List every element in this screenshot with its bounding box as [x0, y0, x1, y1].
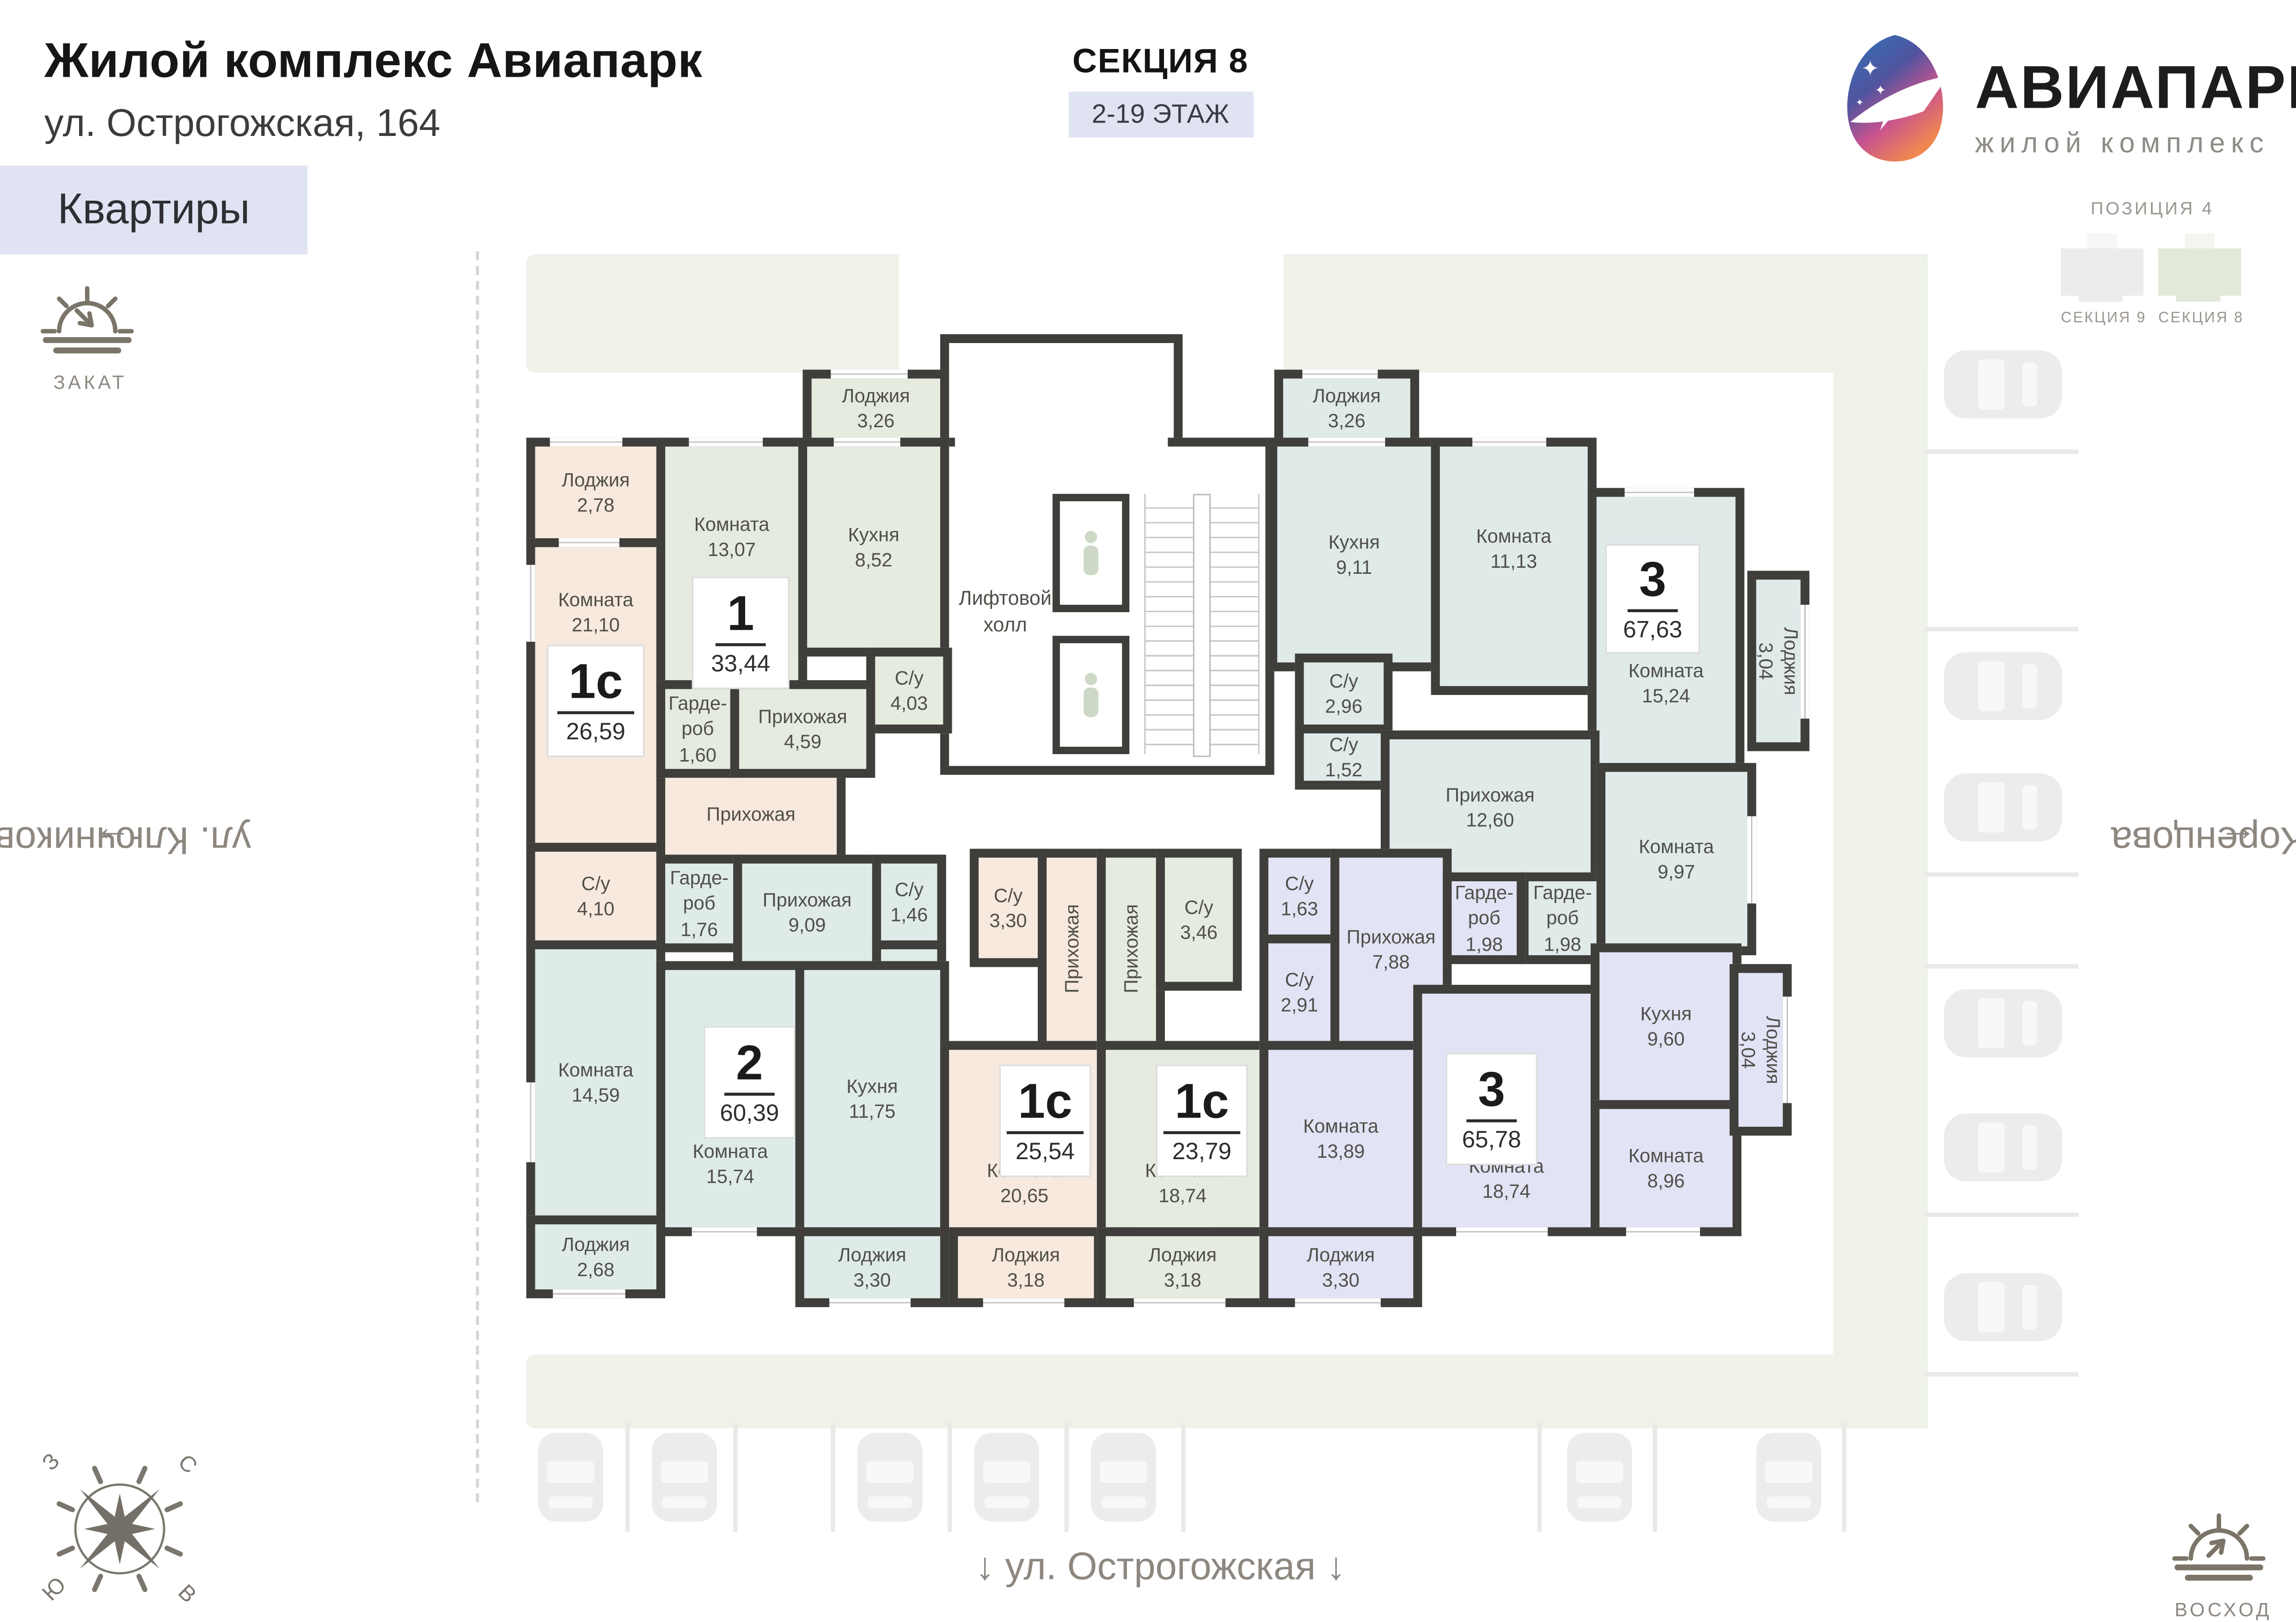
window	[834, 438, 900, 447]
apartment-type: 1с	[1163, 1076, 1241, 1134]
apartment-type: 3	[1466, 1064, 1517, 1122]
room-area: 1,98	[1465, 933, 1503, 955]
airplane-logo-icon: ✦ ✦ ✦	[1830, 30, 1960, 166]
room-name: Комната	[1303, 1115, 1378, 1137]
car-icon	[968, 1428, 1045, 1526]
apt-3-65-78-room-8-room[interactable]: Лоджия 3,30	[1260, 1227, 1422, 1307]
page-title: Жилой комплекс Авиапарк	[44, 32, 703, 89]
room-name: Лоджия	[1149, 1243, 1217, 1266]
room-area: 9,09	[789, 914, 826, 936]
elevator-2	[1053, 636, 1129, 754]
window	[1800, 604, 1809, 718]
window	[1308, 438, 1385, 447]
room-name: Гарде- роб	[668, 693, 727, 740]
room-area: 15,74	[706, 1165, 754, 1187]
apartment-type: 1	[715, 588, 766, 645]
window	[553, 1290, 626, 1298]
room-area: 20,65	[1000, 1185, 1048, 1207]
room-name: С/у	[895, 667, 924, 689]
plot-green-right	[1833, 254, 1928, 1428]
car-icon	[646, 1428, 723, 1526]
apt-3-67-63-room-4-bathroom[interactable]: С/у 2,96	[1295, 654, 1392, 734]
elevator-1	[1053, 494, 1129, 612]
car-icon	[851, 1428, 928, 1526]
room-area: 1,46	[890, 903, 928, 926]
window	[1456, 1227, 1548, 1236]
elevator-hall-label: Лифтовой холл	[946, 585, 1065, 639]
room-name: С/у	[994, 884, 1022, 906]
room-area: 3,30	[1322, 1269, 1359, 1291]
room-name: Лоджия	[838, 1243, 906, 1266]
car-icon	[1940, 766, 2067, 849]
apt-3-67-63-room-5-bathroom[interactable]: С/у 1,52	[1295, 725, 1392, 790]
room-area: 9,97	[1658, 860, 1695, 883]
room-area: 3,18	[1007, 1269, 1045, 1291]
room-area: 12,60	[1466, 809, 1514, 831]
car-icon	[532, 1428, 609, 1526]
apt-3-67-63-room-9-room[interactable]: Лоджия 3,04	[1747, 571, 1809, 751]
room-area: 14,59	[572, 1084, 620, 1106]
apt-1с-26-59-room-0-room[interactable]: Лоджия 2,78	[526, 438, 665, 547]
room-name: Комната	[1476, 525, 1551, 547]
car-icon	[1940, 645, 2067, 727]
staircase	[1144, 494, 1259, 754]
room-area: 3,30	[990, 909, 1027, 932]
apartment-type: 2	[724, 1037, 775, 1095]
apt-3-65-78-room-3-room[interactable]: Гарде- роб 1,98	[1443, 872, 1525, 964]
apt-1с-25-54-room-3-room[interactable]: Лоджия 3,18	[949, 1227, 1103, 1307]
compass-north: С	[173, 1450, 202, 1478]
apartment-total-area: 26,59	[566, 713, 625, 746]
room-name: Гарде- роб	[670, 867, 729, 915]
section-header: СЕКЦИЯ 8 2-19 ЭТАЖ	[946, 42, 1375, 138]
apartment-type: 3	[1627, 554, 1678, 612]
svg-text:✦: ✦	[1861, 56, 1879, 80]
room-name: С/у	[895, 878, 924, 900]
logo: ✦ ✦ ✦	[1830, 30, 1960, 173]
apt-1с-26-59-room-3-room[interactable]: Прихожая	[656, 766, 845, 864]
room-area: 3,46	[1180, 921, 1218, 943]
apt-2-60-39-room-7-room[interactable]: Кухня 11,75	[796, 961, 949, 1236]
room-name: С/у	[1329, 670, 1358, 692]
compass-west: З	[37, 1449, 64, 1475]
window	[1626, 1227, 1699, 1236]
room-area: 13,07	[708, 538, 756, 560]
room-area: 11,13	[1490, 550, 1537, 572]
apt-1-33-44-room-3-bathroom[interactable]: С/у 4,03	[866, 648, 952, 733]
room-name: Прихожая	[706, 804, 796, 826]
svg-text:✦: ✦	[1875, 83, 1886, 98]
room-name: Лоджия	[562, 468, 630, 491]
room-area: 1,98	[1544, 933, 1581, 955]
sunset-label: ЗАКАТ	[38, 371, 142, 393]
apt-3-67-63-badge[interactable]: 367,63	[1605, 544, 1700, 654]
apt-1с-25-54-badge[interactable]: 1с25,54	[999, 1065, 1091, 1177]
minimap-section-9[interactable]: СЕКЦИЯ 9	[2061, 233, 2146, 326]
room-name: Прихожая	[1347, 925, 1436, 947]
room-area: 8,52	[855, 548, 892, 571]
room-area: 18,74	[1158, 1185, 1206, 1207]
apt-3-65-78-badge[interactable]: 365,78	[1446, 1053, 1537, 1165]
apartment-total-area: 25,54	[1016, 1133, 1075, 1166]
minimap-section-8[interactable]: СЕКЦИЯ 8	[2158, 233, 2244, 326]
position-title: ПОЗИЦИЯ 4	[2055, 198, 2250, 219]
window	[1624, 488, 1694, 497]
apt-3-67-63-room-8-room[interactable]: Комната 9,97	[1597, 763, 1756, 955]
boundary-dashed-line	[476, 252, 479, 1503]
room-name: Гарде- роб	[1533, 882, 1592, 929]
apt-2-60-39-room-2-room[interactable]: Гарде- роб 1,76	[656, 854, 742, 952]
sunset-legend: ЗАКАТ	[38, 281, 142, 393]
room-name: Кухня	[1640, 1002, 1691, 1025]
apt-2-60-39-badge[interactable]: 260,39	[704, 1026, 795, 1138]
room-area: 15,24	[1642, 685, 1690, 707]
tab-apartments[interactable]: Квартиры	[0, 166, 307, 254]
minimap-section-9-label: СЕКЦИЯ 9	[2061, 311, 2146, 327]
apartment-total-area: 23,79	[1172, 1133, 1231, 1166]
compass-east: В	[173, 1580, 201, 1608]
apt-1с-23-79-room-1-bathroom[interactable]: С/у 3,46	[1156, 849, 1242, 991]
apt-1с-26-59-room-2-bathroom[interactable]: С/у 4,10	[526, 843, 665, 949]
apt-1-33-44-room-2-room[interactable]: Кухня 8,52	[798, 438, 949, 657]
room-area: 21,10	[572, 614, 620, 636]
window	[1302, 370, 1378, 379]
apt-3-67-63-room-2-room[interactable]: Комната 11,13	[1431, 438, 1597, 695]
room-name: Лоджия	[562, 1233, 630, 1255]
sunset-icon	[38, 281, 136, 358]
room-name: Лоджия	[1780, 627, 1802, 695]
elevator-person-icon	[1076, 526, 1106, 579]
apt-3-67-63-room-0-room[interactable]: Лоджия 3,26	[1274, 370, 1419, 447]
apt-1-33-44-badge[interactable]: 133,44	[692, 577, 790, 689]
room-name: Прихожая	[1060, 905, 1083, 994]
position-widget: ПОЗИЦИЯ 4 СЕКЦИЯ 9 СЕКЦИЯ 8	[2055, 198, 2250, 327]
room-area: 1,63	[1281, 897, 1318, 920]
room-name: С/у	[1184, 896, 1213, 918]
room-area: 1,76	[680, 918, 718, 940]
logo-text: АВИАПАРК жилой комплекс	[1975, 53, 2296, 161]
car-icon	[1940, 1106, 2067, 1189]
room-name: Лоджия	[842, 384, 910, 406]
window	[550, 438, 622, 447]
street-bottom: ↓ ул. Острогожская ↓	[476, 1544, 1845, 1590]
plot-green-bottom	[526, 1354, 1928, 1428]
window	[526, 1082, 535, 1162]
apt-1с-23-79-badge[interactable]: 1с23,79	[1156, 1065, 1248, 1177]
apartment-total-area: 33,44	[711, 645, 770, 678]
room-area: 18,74	[1482, 1180, 1531, 1202]
room-name: Прихожая	[763, 888, 852, 910]
apt-1с-26-59-badge[interactable]: 1с26,59	[547, 645, 644, 757]
room-area: 1,52	[1325, 759, 1363, 781]
compass-rose-icon: З С Ю В	[32, 1443, 207, 1609]
window	[691, 1227, 756, 1236]
apt-3-67-63-room-1-room[interactable]: Кухня 9,11	[1268, 438, 1440, 671]
window	[982, 1298, 1064, 1307]
car-icon	[1750, 1428, 1827, 1526]
sunrise-label: ВОСХОД	[2170, 1598, 2277, 1621]
apt-1с-23-79-room-0-room[interactable]: Прихожая	[1097, 849, 1165, 1050]
room-area: 3,26	[1328, 410, 1365, 432]
room-area: 7,88	[1372, 951, 1410, 973]
room-area: 9,11	[1336, 556, 1372, 578]
room-name: Прихожая	[1445, 783, 1535, 805]
apt-3-65-78-room-7-room[interactable]: Комната 8,96	[1591, 1100, 1741, 1236]
window	[829, 1298, 910, 1307]
apt-1с-25-54-room-1-room[interactable]: Прихожая	[1038, 849, 1106, 1050]
room-area: 9,60	[1647, 1028, 1685, 1050]
apartment-type: 1с	[557, 656, 635, 713]
room-area: 2,78	[577, 494, 614, 516]
car-icon	[1940, 1266, 2067, 1348]
window	[526, 565, 535, 642]
apt-1с-25-54-room-0-bathroom[interactable]: С/у 3,30	[970, 849, 1047, 967]
room-name: Комната	[692, 1140, 768, 1162]
room-name: Кухня	[846, 1075, 898, 1097]
apt-3-65-78-room-6-room[interactable]: Кухня 9,60	[1591, 943, 1741, 1109]
window	[559, 538, 620, 547]
sunrise-legend: ВОСХОД	[2170, 1508, 2277, 1621]
apt-1-33-44-room-5-room[interactable]: Прихожая 4,59	[730, 680, 875, 778]
apt-2-60-39-room-3-room[interactable]: Прихожая 9,09	[733, 854, 881, 970]
car-icon	[1940, 343, 2067, 426]
window	[689, 438, 762, 447]
apt-2-60-39-room-8-room[interactable]: Лоджия 3,30	[796, 1227, 949, 1307]
minimap-section-8-label: СЕКЦИЯ 8	[2158, 311, 2244, 327]
room-name: Гарде- роб	[1455, 882, 1513, 929]
window	[1747, 816, 1756, 903]
room-name: Кухня	[1329, 531, 1380, 553]
floorplan-page: Жилой комплекс Авиапарк ул. Острогожская…	[0, 0, 2296, 1622]
compass-south: Ю	[37, 1573, 71, 1606]
room-area: 1,60	[679, 743, 716, 765]
compass: З С Ю В	[32, 1443, 207, 1616]
window	[1472, 438, 1546, 447]
apt-3-65-78-room-1-bathroom[interactable]: С/у 2,91	[1260, 934, 1340, 1050]
apartment-total-area: 67,63	[1623, 611, 1682, 644]
room-name: Комната	[1629, 1144, 1704, 1167]
sunrise-icon	[2170, 1508, 2268, 1585]
room-area: 2,91	[1281, 994, 1318, 1016]
room-area: 3,04	[1755, 642, 1777, 680]
room-name: С/у	[1285, 872, 1314, 894]
room-name: Кухня	[848, 523, 899, 546]
room-area: 11,75	[849, 1100, 895, 1122]
page-address: ул. Острогожская, 164	[44, 100, 703, 146]
room-name: Лоджия	[1313, 384, 1381, 406]
room-name: Комната	[1629, 659, 1704, 682]
window	[1294, 1298, 1381, 1307]
apt-1с-23-79-room-3-room[interactable]: Лоджия 3,18	[1097, 1227, 1268, 1307]
elevator-person-icon	[1076, 668, 1106, 721]
apartment-type: 1с	[1006, 1076, 1084, 1134]
window	[1783, 996, 1792, 1104]
window	[1133, 1298, 1226, 1307]
room-name: Лоджия	[1307, 1243, 1375, 1266]
room-name: Комната	[694, 513, 770, 535]
floor-range-badge[interactable]: 2-19 ЭТАЖ	[1068, 92, 1253, 137]
room-name: С/у	[582, 872, 610, 894]
car-icon	[1940, 982, 2067, 1064]
room-name: Лоджия	[1763, 1016, 1785, 1084]
room-name: Комната	[1639, 835, 1714, 857]
apt-2-60-39-room-0-room[interactable]: Комната 14,59	[526, 940, 665, 1224]
room-area: 2,96	[1325, 695, 1363, 717]
logo-name: АВИАПАРК	[1975, 53, 2296, 123]
room-area: 13,89	[1317, 1140, 1365, 1162]
logo-subtitle: жилой комплекс	[1975, 129, 2296, 161]
room-area: 3,30	[853, 1269, 891, 1291]
room-area: 2,68	[577, 1258, 614, 1280]
svg-text:✦: ✦	[1856, 98, 1864, 108]
room-name: С/у	[1329, 733, 1358, 756]
room-area: 8,96	[1647, 1170, 1685, 1192]
apt-1-33-44-room-4-room[interactable]: Гарде- роб 1,60	[656, 680, 739, 778]
header: Жилой комплекс Авиапарк ул. Острогожская…	[44, 32, 703, 146]
apt-3-65-78-room-9-room[interactable]: Лоджия 3,04	[1730, 964, 1792, 1136]
room-name: Прихожая	[1120, 905, 1142, 994]
room-area: 4,03	[890, 692, 928, 714]
apt-3-65-78-room-4-room[interactable]: Комната 13,89	[1260, 1041, 1422, 1236]
apt-1-33-44-room-0-room[interactable]: Лоджия 3,26	[803, 370, 949, 447]
apartment-total-area: 65,78	[1462, 1122, 1521, 1154]
car-icon	[1561, 1428, 1638, 1526]
room-name: Комната	[558, 1058, 633, 1081]
apt-2-60-39-room-1-room[interactable]: Лоджия 2,68	[526, 1216, 665, 1298]
room-name: Лоджия	[992, 1243, 1060, 1266]
window	[831, 370, 908, 379]
room-area: 3,04	[1737, 1031, 1759, 1069]
room-area: 3,26	[857, 410, 894, 432]
apartment-total-area: 60,39	[720, 1095, 779, 1127]
room-area: 4,10	[577, 897, 614, 920]
room-name: Прихожая	[758, 705, 847, 727]
room-name: Комната	[558, 588, 633, 610]
room-name: С/у	[1285, 968, 1314, 990]
apt-2-60-39-room-4-bathroom[interactable]: С/у 1,46	[872, 854, 946, 949]
apt-3-65-78-room-0-bathroom[interactable]: С/у 1,63	[1260, 849, 1340, 944]
room-area: 4,59	[784, 731, 821, 753]
room-area: 3,18	[1164, 1269, 1201, 1291]
car-icon	[1085, 1428, 1162, 1526]
section-title: СЕКЦИЯ 8	[946, 42, 1375, 81]
